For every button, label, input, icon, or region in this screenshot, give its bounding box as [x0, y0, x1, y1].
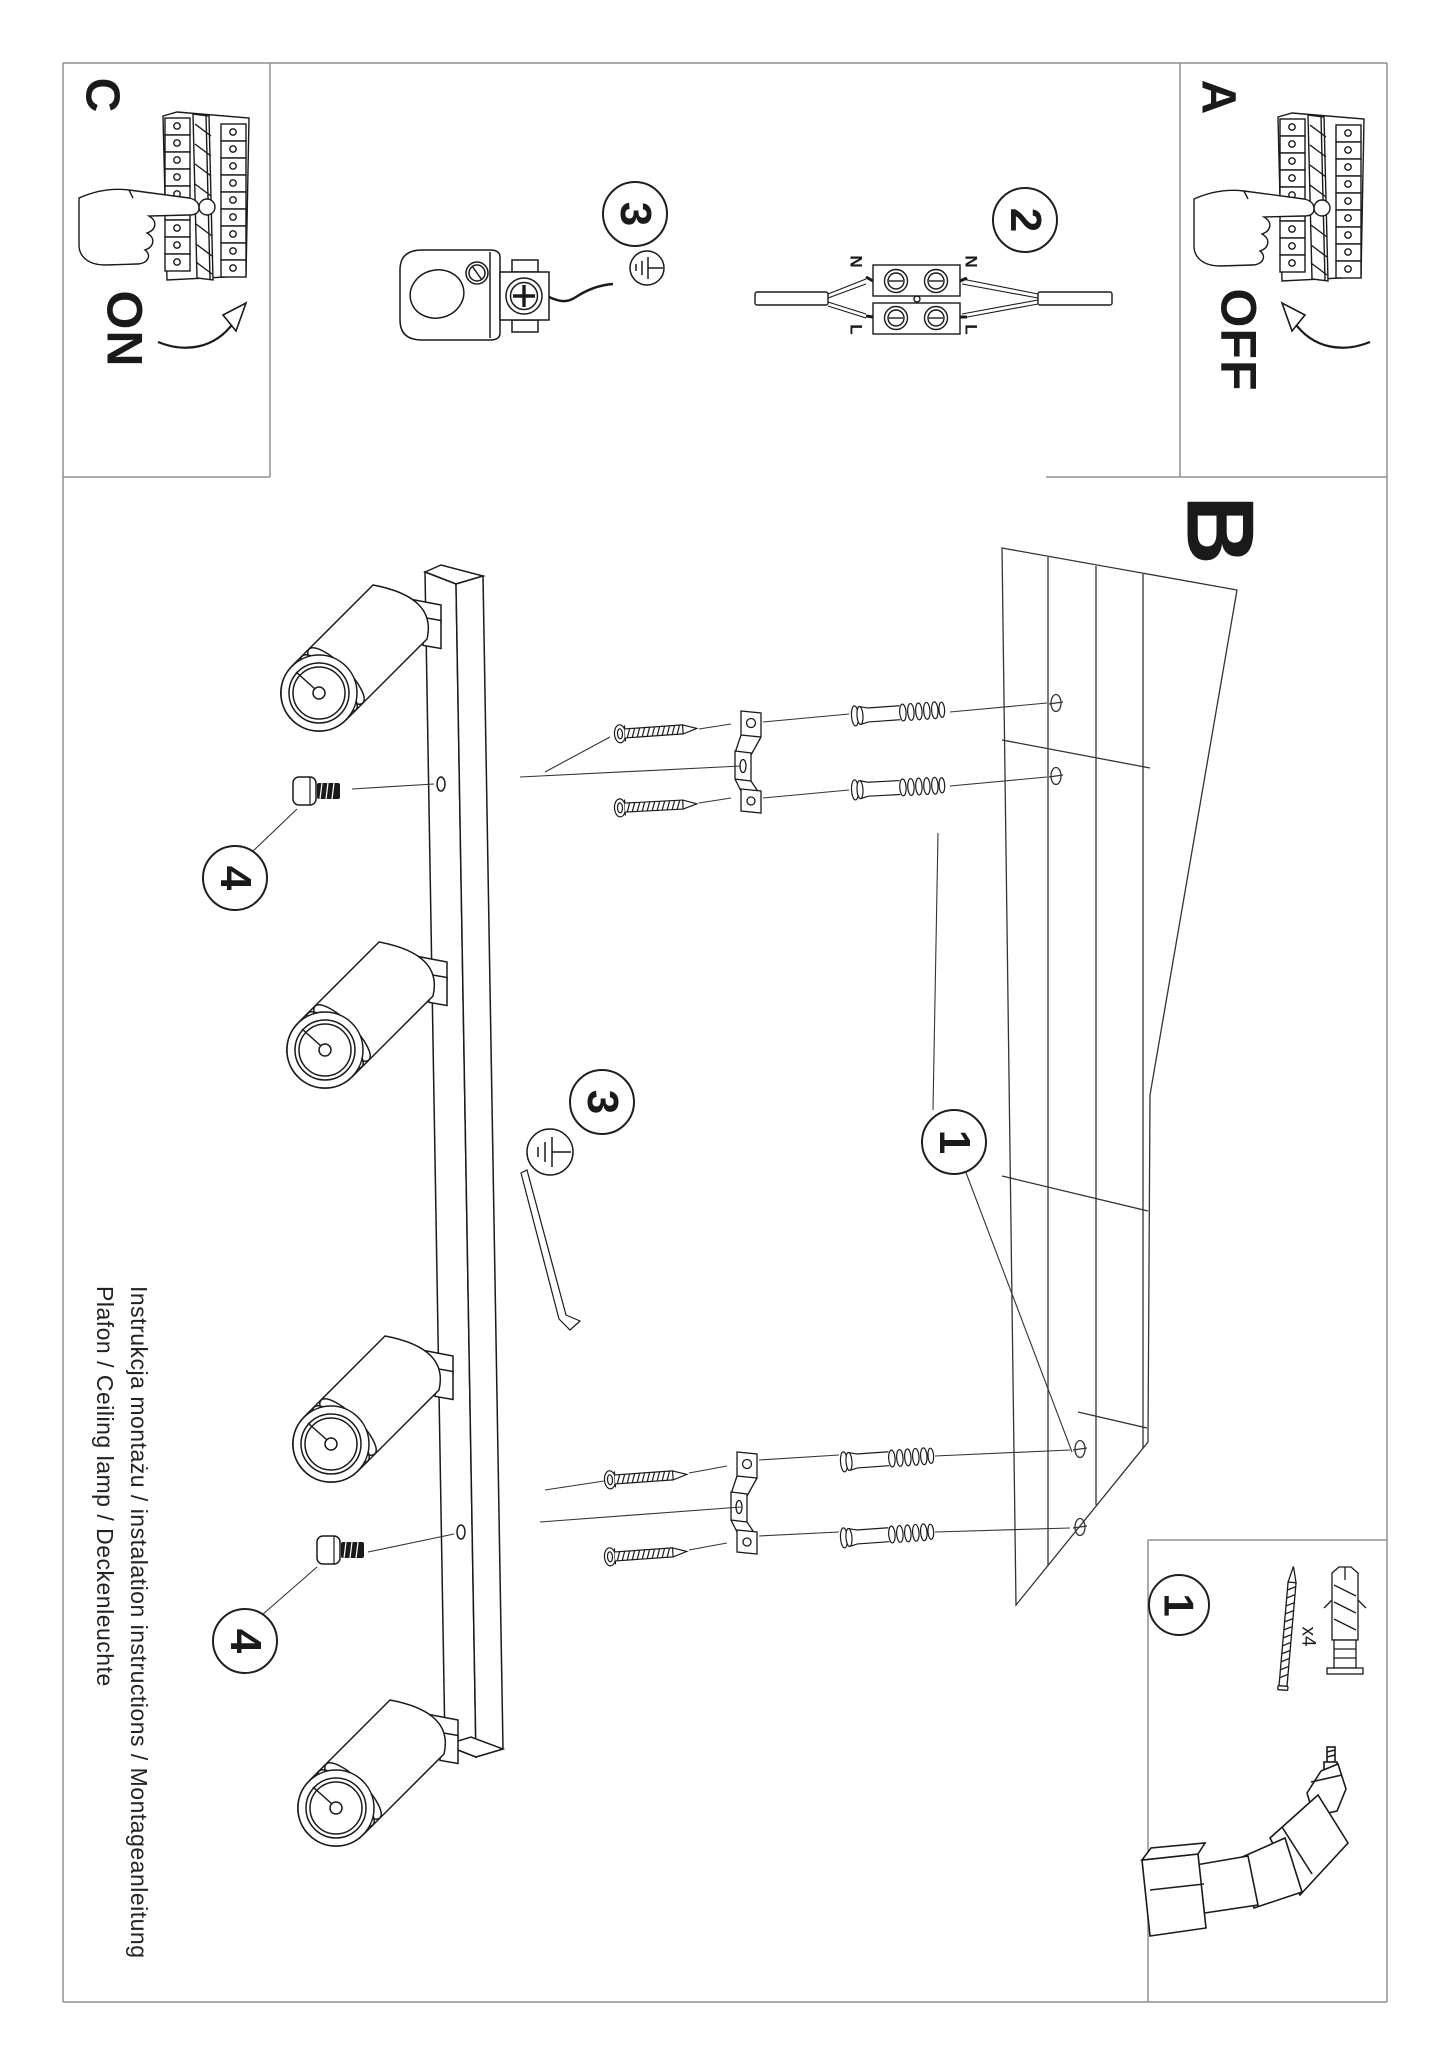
wire-label-l-right: L	[951, 309, 991, 349]
callout-step-3-top: 3	[602, 181, 668, 247]
set-screw-upper	[293, 777, 340, 805]
switch-on-label: ON	[64, 269, 184, 389]
wiring-diagram	[755, 265, 1112, 334]
callout-step-4-lower: 4	[212, 1608, 278, 1674]
callout-step-3-mid: 3	[569, 1069, 635, 1135]
leader-lines	[251, 784, 1072, 1615]
earth-symbol-mid	[527, 1129, 573, 1175]
section-a-label: A	[1172, 52, 1262, 142]
wire-label-l-left: L	[836, 309, 876, 349]
wire-label-n-right: N	[951, 241, 991, 281]
callout-step-4-upper: 4	[202, 845, 268, 911]
instruction-sheet: C ON A OFF B 3 2 4 3 1 4 1 N N L L x4 In…	[0, 0, 1448, 2047]
hardware-lower	[540, 1446, 1070, 1567]
spotlight-1	[281, 585, 441, 731]
footer-title-line2: Plafon / Ceiling lamp / Deckenleuchte	[91, 1286, 118, 1687]
footer-title-line1: Instrukcja montażu / instalation instruc…	[125, 1286, 152, 1959]
wire-label-n-left: N	[836, 241, 876, 281]
arrow-up-right-icon	[223, 303, 246, 331]
callout-step-1-main: 1	[921, 1109, 987, 1175]
spotlight-4	[298, 1700, 458, 1846]
canopy-detail	[400, 250, 613, 340]
callout-step-1-parts: 1	[1148, 1574, 1210, 1636]
set-screw-lower	[317, 1536, 364, 1564]
earth-symbol-top	[630, 251, 664, 285]
spotlight-2	[287, 942, 447, 1088]
screw-quantity-label: x4	[1284, 1612, 1332, 1660]
section-c-label: C	[56, 50, 146, 140]
spotlight-3	[293, 1336, 453, 1482]
ceiling-plane	[1002, 548, 1237, 1605]
hardware-upper	[520, 700, 1047, 817]
callout-step-2: 2	[992, 187, 1058, 253]
ground-strip	[521, 1170, 580, 1330]
section-b-label: B	[1160, 470, 1280, 590]
lamp-rail	[425, 565, 503, 1757]
switch-off-label: OFF	[1178, 280, 1298, 400]
